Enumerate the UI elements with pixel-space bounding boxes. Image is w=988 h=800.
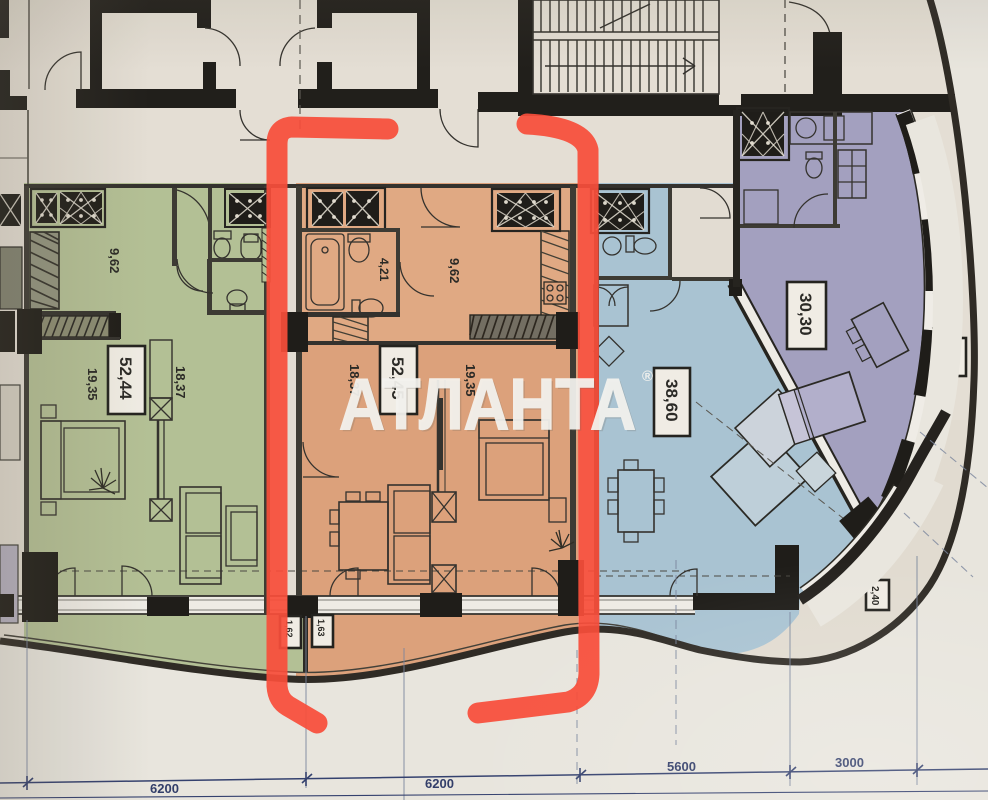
svg-text:®: ® xyxy=(642,368,653,385)
svg-text:АТЛАНТА: АТЛАНТА xyxy=(339,365,636,445)
